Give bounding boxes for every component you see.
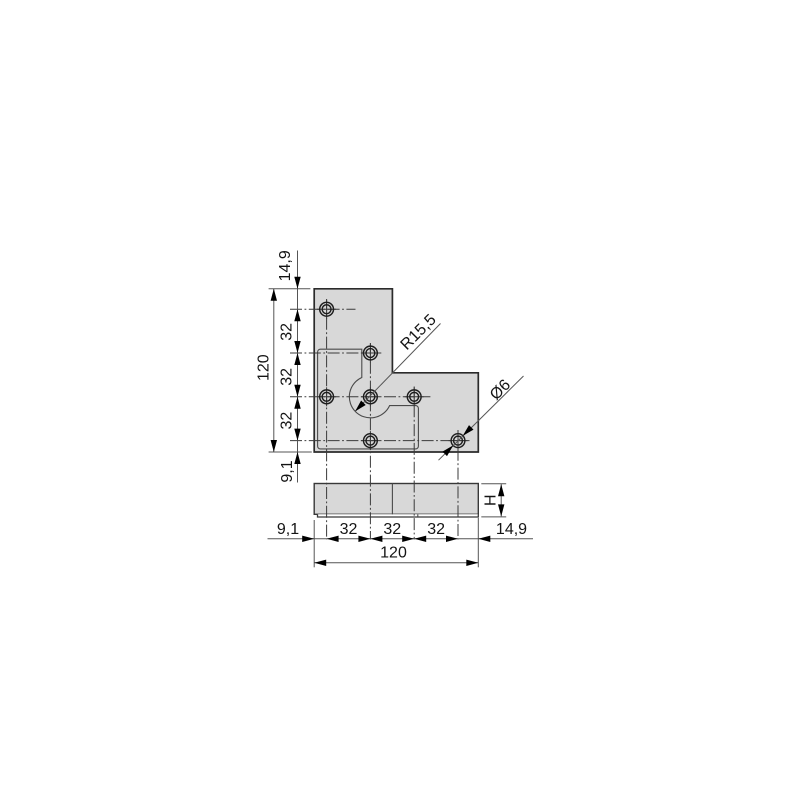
svg-text:32: 32 (279, 412, 296, 430)
svg-text:Ø6: Ø6 (487, 376, 514, 403)
svg-text:120: 120 (255, 354, 272, 381)
svg-text:120: 120 (380, 544, 407, 561)
svg-text:14,9: 14,9 (277, 250, 294, 281)
svg-text:32: 32 (279, 323, 296, 341)
svg-text:32: 32 (279, 368, 296, 386)
svg-text:14,9: 14,9 (496, 521, 527, 538)
svg-text:32: 32 (383, 521, 401, 538)
svg-text:R15,5: R15,5 (398, 311, 440, 353)
svg-text:9,1: 9,1 (277, 521, 299, 538)
svg-text:9,1: 9,1 (279, 460, 296, 482)
svg-text:32: 32 (427, 521, 445, 538)
svg-text:H: H (483, 494, 500, 506)
svg-text:32: 32 (340, 521, 358, 538)
